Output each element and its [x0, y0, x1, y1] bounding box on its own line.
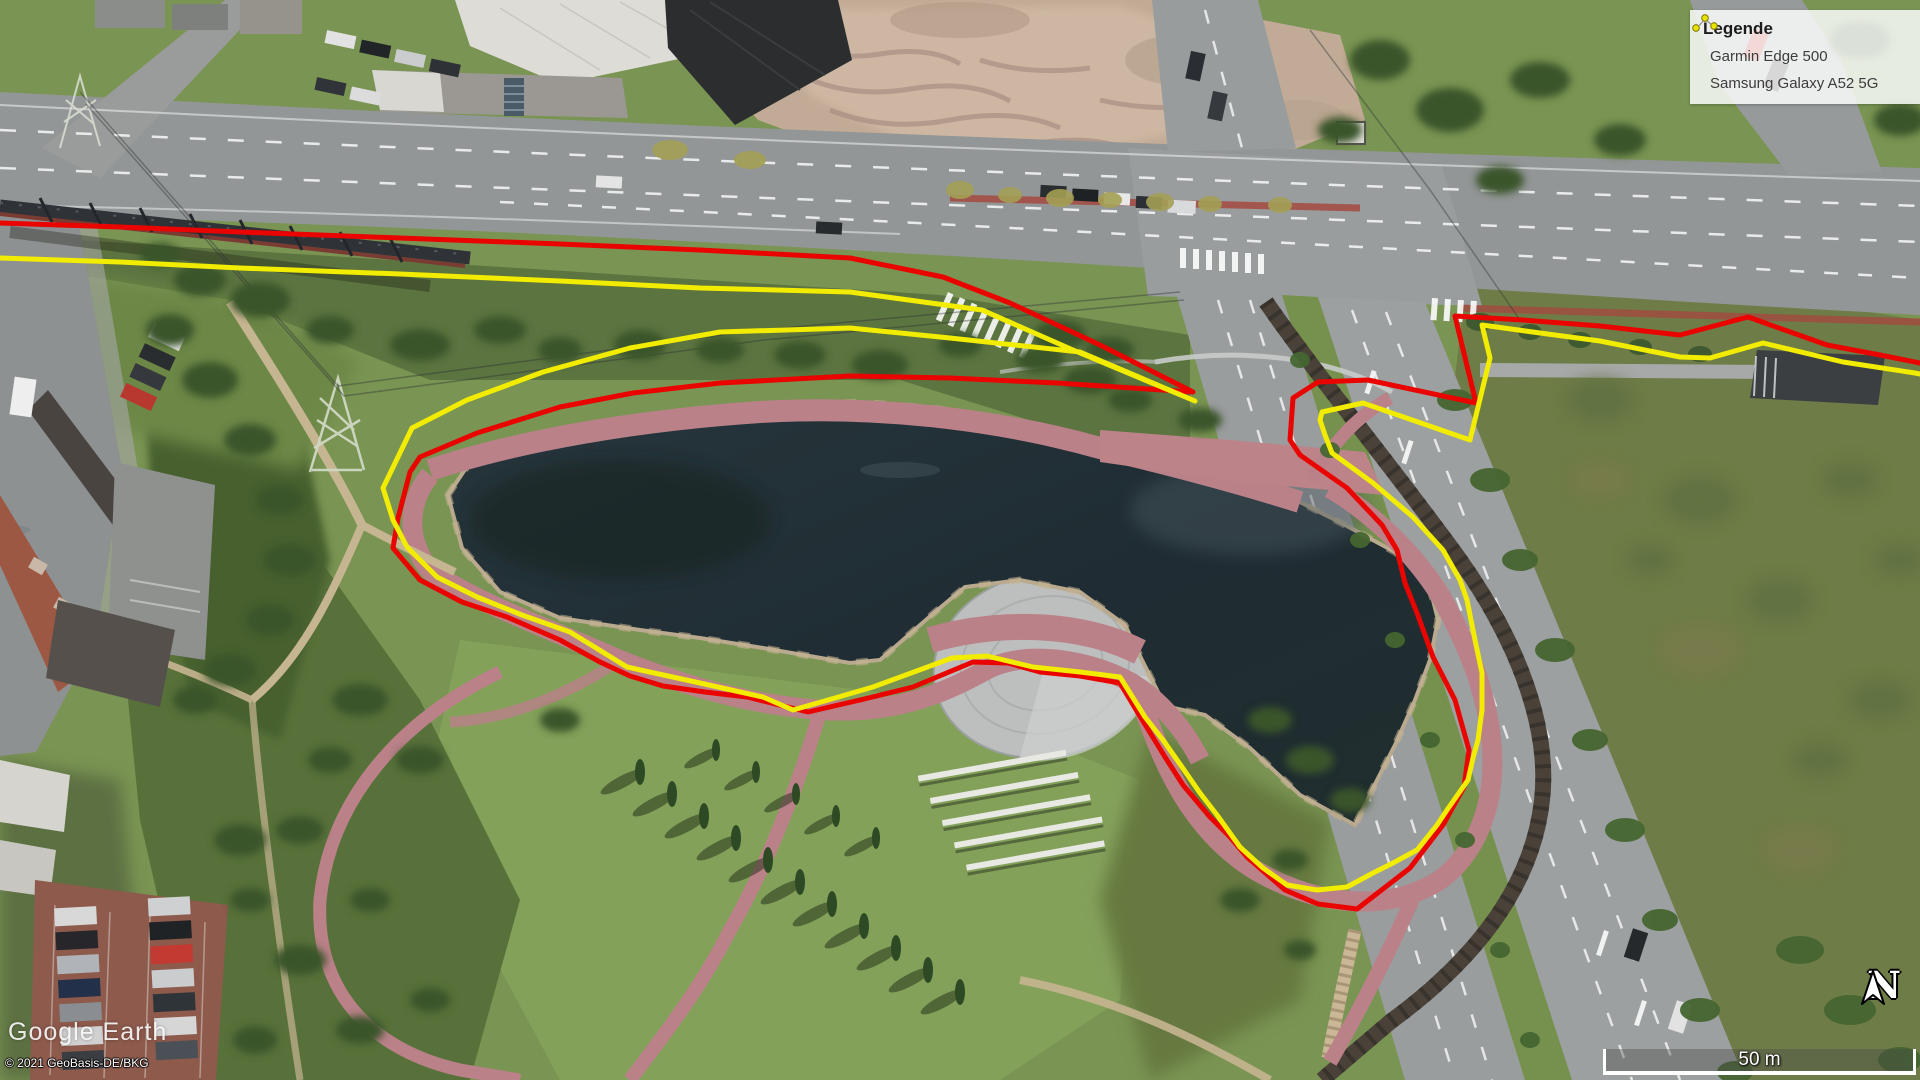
- map-canvas[interactable]: [0, 0, 1920, 1080]
- legend-item-label: Samsung Galaxy A52 5G: [1710, 75, 1878, 92]
- legend-item-garmin: Garmin Edge 500: [1690, 43, 1920, 70]
- scale-bar-label: 50 m: [1738, 1049, 1780, 1071]
- north-indicator: N: [1858, 970, 1910, 1000]
- legend-title: Legende: [1703, 19, 1920, 39]
- copyright-attribution: © 2021 GeoBasis-DE/BKG: [5, 1056, 149, 1070]
- scale-bar: 50 m: [1603, 1049, 1916, 1075]
- google-earth-watermark: Google Earth: [8, 1018, 167, 1047]
- legend-item-label: Garmin Edge 500: [1710, 48, 1828, 65]
- google-earth-viewport: Legende Garmin Edge 500 Samsung Galaxy A…: [0, 0, 1920, 1080]
- legend-panel: Legende Garmin Edge 500 Samsung Galaxy A…: [1690, 10, 1920, 104]
- legend-item-samsung: Samsung Galaxy A52 5G: [1690, 70, 1920, 97]
- north-arrow-icon: [1858, 970, 1888, 1006]
- gps-track-icon: [1690, 10, 1720, 34]
